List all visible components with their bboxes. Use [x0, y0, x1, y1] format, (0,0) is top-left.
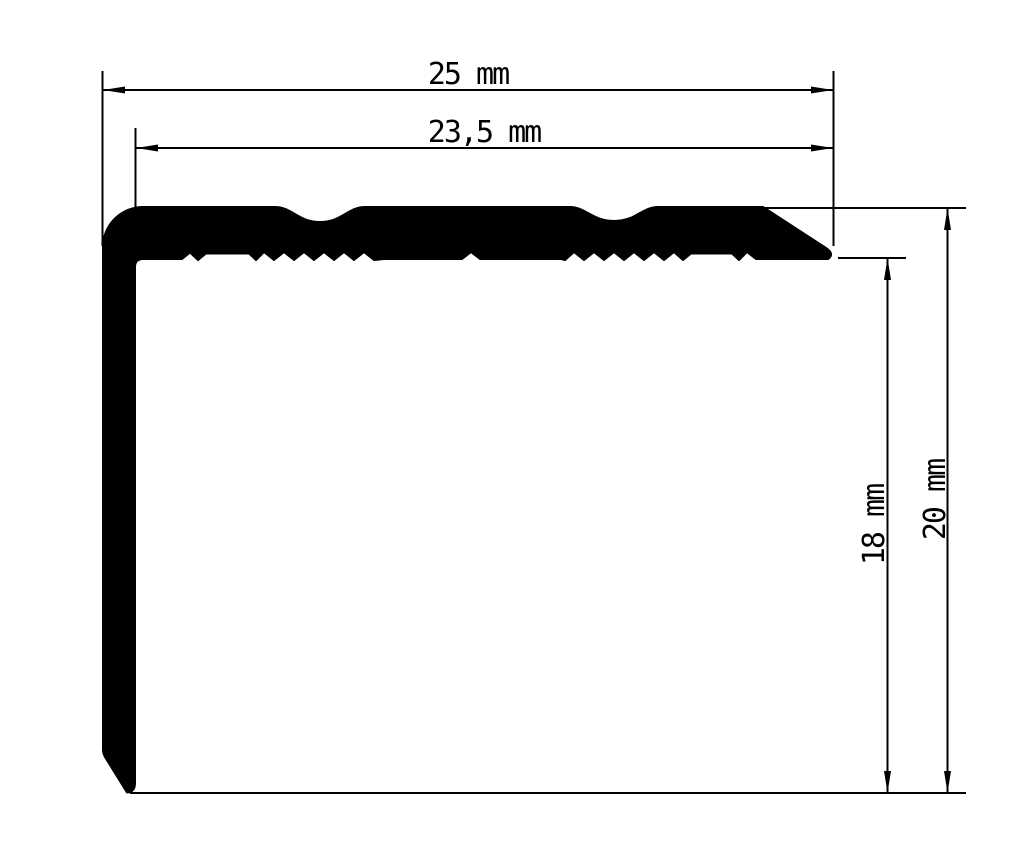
- arrowhead-25mm-left: [103, 87, 125, 94]
- arrowhead-23-5mm-right: [811, 145, 833, 152]
- drawing-canvas: 25 mm 23,5 mm 18 mm 20 mm: [0, 0, 1024, 853]
- arrowhead-20mm-top: [944, 208, 951, 230]
- dimension-label-inner-height: 18 mm: [857, 484, 892, 565]
- arrowhead-18mm-top: [884, 258, 891, 280]
- arrowhead-23-5mm-left: [136, 145, 158, 152]
- arrowhead-20mm-bottom: [944, 771, 951, 793]
- dimension-label-outer-height: 20 mm: [918, 459, 953, 540]
- l-profile-cross-section: [103, 207, 831, 793]
- dimension-label-outer-width: 25 mm: [428, 57, 509, 92]
- dimension-label-inner-width: 23,5 mm: [428, 115, 541, 150]
- arrowhead-25mm-right: [811, 87, 833, 94]
- arrowhead-18mm-bottom: [884, 771, 891, 793]
- technical-drawing: 25 mm 23,5 mm 18 mm 20 mm: [0, 0, 1024, 853]
